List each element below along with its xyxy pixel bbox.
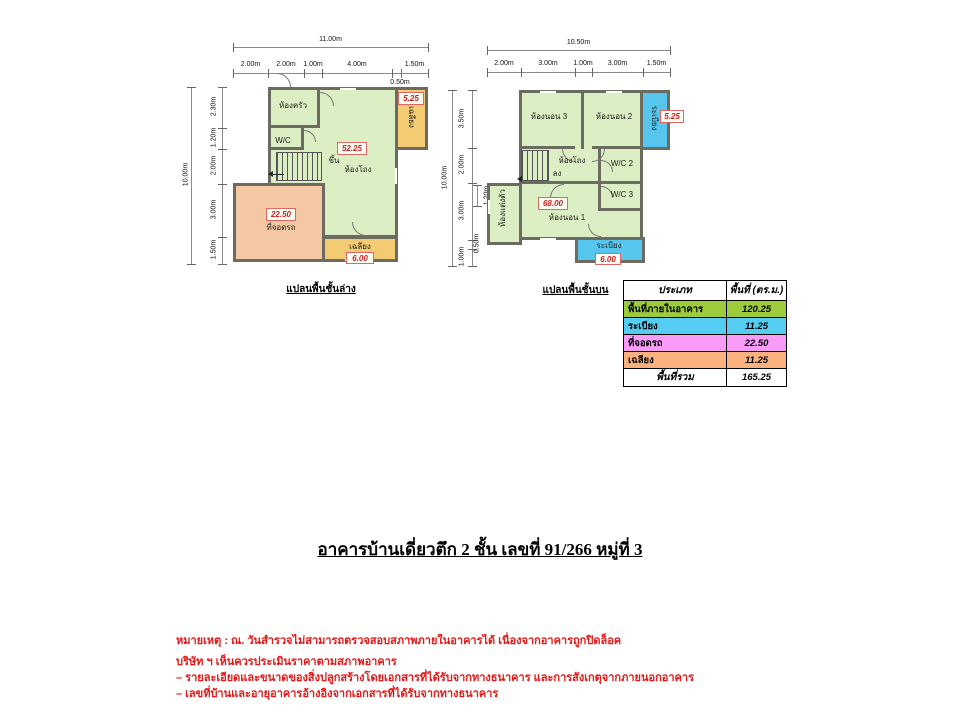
- dim-label-total-height: 10.00m: [441, 164, 450, 192]
- dim-label: 2.00m: [458, 151, 467, 179]
- area-box-balcony-right: 5.25: [660, 110, 684, 123]
- dim-label: 3.50m: [458, 105, 467, 133]
- dim-label: 1.50m: [643, 59, 670, 68]
- dimension-line: [452, 90, 453, 266]
- table-cell-value: 22.50: [727, 335, 786, 351]
- dim-label: 2.00m: [487, 59, 521, 68]
- table-header-type: ประเภท: [624, 281, 727, 300]
- note-line: – เลขที่บ้านและอายุอาคารอ้างอิงจากเอกสาร…: [176, 684, 498, 702]
- table-header-area: พื้นที่ (ตร.ม.): [727, 281, 786, 300]
- dim-tick: [670, 46, 671, 55]
- room-label-upper-hall: ห้องโถง: [547, 156, 597, 166]
- dim-label: 3.00m: [458, 197, 467, 225]
- wall: [598, 208, 643, 211]
- table-cell-value: 11.25: [727, 318, 786, 334]
- table-cell-label: ระเบียง: [624, 318, 727, 334]
- table-cell-label: ที่จอดรถ: [624, 335, 727, 351]
- dimension-line: [487, 50, 670, 51]
- room-label-stairs-down: ลง: [548, 169, 566, 179]
- upper-floor-caption: แปลนพื้นชั้นบน: [523, 283, 628, 298]
- dim-tick: [575, 68, 576, 77]
- table-cell-label: เฉลียง: [624, 352, 727, 368]
- dimension-line: [477, 185, 478, 206]
- room-label-bedroom2: ห้องนอน 2: [585, 112, 643, 122]
- dim-tick: [473, 185, 482, 186]
- area-box-bedroom1: 68.00: [538, 197, 568, 210]
- room-label-bedroom1: ห้องนอน 1: [537, 213, 597, 223]
- dim-tick: [487, 68, 488, 77]
- room-label-balcony-right: ระเบียง: [649, 104, 659, 132]
- document-title: อาคารบ้านเดี่ยวตึก 2 ชั้น เลขที่ 91/266 …: [0, 536, 960, 563]
- room-label-wc3: W/C 3: [603, 190, 641, 200]
- dim-tick: [487, 46, 488, 55]
- dim-tick: [468, 266, 477, 267]
- dim-tick: [643, 68, 644, 77]
- dim-label-sub: 0.50m: [473, 230, 482, 258]
- upper-floor-plan: 10.50m 2.00m 3.00m 1.00m 3.00m 1.50m 10.…: [0, 0, 960, 720]
- window-gap: [540, 91, 556, 93]
- table-row: พื้นที่ภายในอาคาร 120.25: [624, 301, 786, 318]
- table-cell-value: 120.25: [727, 301, 786, 317]
- table-footer-row: พื้นที่รวม 165.25: [624, 369, 786, 386]
- table-row: เฉลียง 11.25: [624, 352, 786, 369]
- dim-tick: [468, 90, 477, 91]
- room-label-balcony-bottom: ระเบียง: [578, 241, 640, 251]
- area-table: ประเภท พื้นที่ (ตร.ม.) พื้นที่ภายในอาคาร…: [623, 280, 787, 387]
- dim-tick: [448, 90, 457, 91]
- area-box-balcony-bottom: 6.00: [595, 253, 621, 265]
- dim-label: 3.00m: [592, 59, 643, 68]
- dimension-line: [487, 72, 670, 73]
- dim-tick: [468, 148, 477, 149]
- dim-tick: [592, 68, 593, 77]
- table-footer-value: 165.25: [727, 369, 786, 386]
- dim-tick: [448, 266, 457, 267]
- table-footer-label: พื้นที่รวม: [624, 369, 727, 386]
- window-gap: [540, 238, 556, 240]
- window-gap: [606, 91, 622, 93]
- table-row: ที่จอดรถ 22.50: [624, 335, 786, 352]
- table-header-row: ประเภท พื้นที่ (ตร.ม.): [624, 281, 786, 301]
- window-gap: [488, 200, 490, 214]
- table-cell-value: 11.25: [727, 352, 786, 368]
- table-row: ระเบียง 11.25: [624, 318, 786, 335]
- stair-arrow-head: [517, 176, 522, 182]
- dim-tick: [670, 68, 671, 77]
- room-label-bedroom3: ห้องนอน 3: [520, 112, 578, 122]
- room-label-wc2: W/C 2: [603, 159, 641, 169]
- dim-label: 1.00m: [458, 243, 467, 271]
- table-cell-label: พื้นที่ภายในอาคาร: [624, 301, 727, 317]
- dim-label-total-width: 10.50m: [487, 38, 670, 47]
- dim-tick: [521, 68, 522, 77]
- wall: [581, 90, 584, 149]
- note-line: หมายเหตุ : ณ. วันสำรวจไม่สามารถตรวจสอบสภ…: [176, 631, 621, 649]
- dim-tick: [468, 183, 477, 184]
- wall: [519, 181, 643, 184]
- stairs: [521, 150, 549, 181]
- room-label-dressing: ห้องแต่งตัว: [498, 199, 508, 227]
- dim-tick: [473, 206, 482, 207]
